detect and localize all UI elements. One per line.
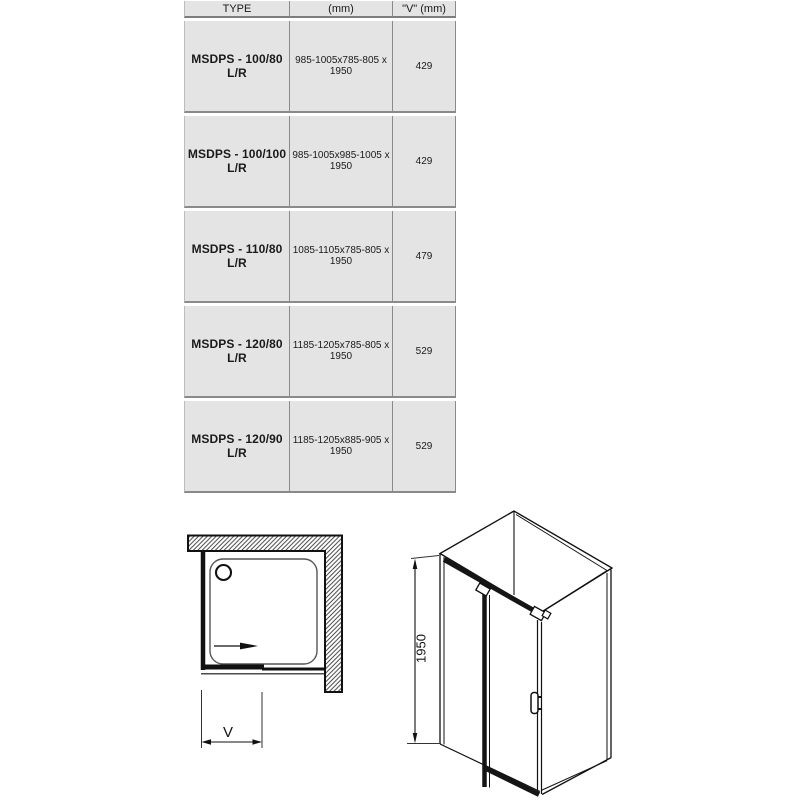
drain-circle (216, 565, 231, 580)
dim-arrow-head-left (202, 739, 212, 744)
height-dim-arrow-bottom (413, 733, 418, 743)
door-handle (531, 693, 538, 714)
fixed-front-panel (262, 668, 325, 671)
height-dim-extension-top (411, 556, 439, 559)
dim-arrow-head-right (253, 739, 263, 744)
perspective-view-diagram: 1950 (407, 511, 612, 795)
v-dimension-label: V (223, 724, 233, 741)
height-dim-arrow-top (413, 559, 418, 569)
spec-sheet-page: TYPE (mm) "V" (mm) MSDPS - 100/80 L/R 98… (0, 0, 800, 800)
plan-view-diagram: V (188, 536, 342, 749)
technical-drawings: V (0, 0, 800, 800)
right-bottom-edge-inner (541, 761, 607, 791)
sliding-door-panel (201, 665, 264, 670)
top-face-outline (440, 511, 612, 613)
height-dimension-label: 1950 (414, 634, 429, 663)
bottom-rail (485, 768, 539, 795)
